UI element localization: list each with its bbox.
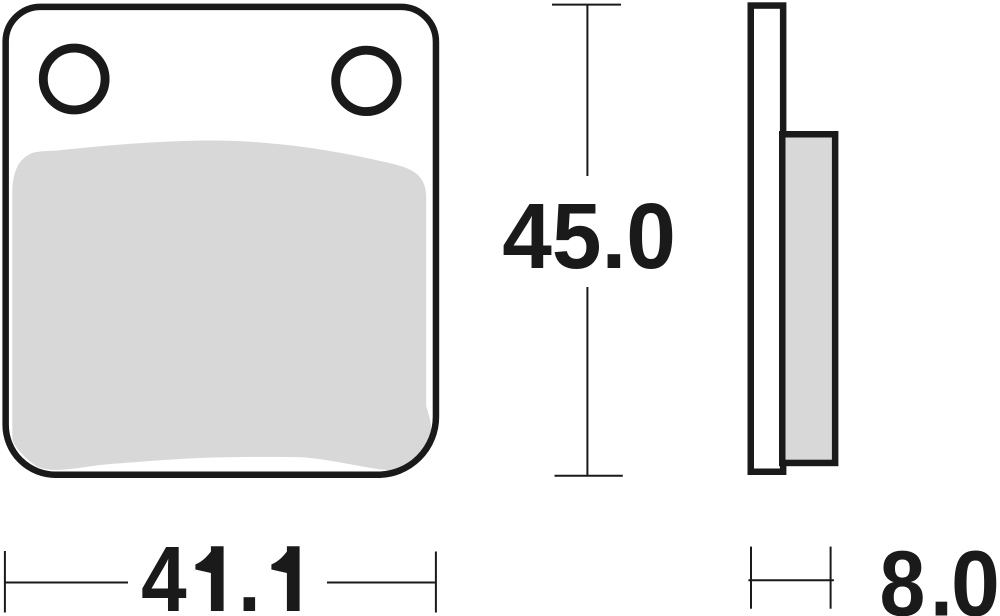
svg-text:0: 0	[951, 532, 1000, 616]
svg-text:8: 8	[880, 532, 926, 616]
svg-text:4: 4	[141, 527, 187, 616]
svg-text:.: .	[238, 527, 261, 616]
svg-text:45.0: 45.0	[502, 185, 676, 288]
svg-text:.: .	[930, 532, 953, 616]
